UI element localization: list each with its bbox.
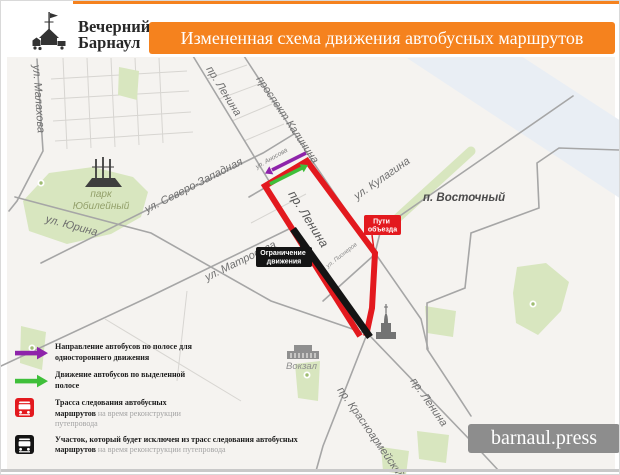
park-label-line1: парк [90, 189, 113, 200]
legend-purple-arrow-icon [15, 342, 55, 365]
bottom-border [1, 469, 619, 472]
legend-item-lane: Движение автобусов по выделенной полосе [15, 370, 325, 393]
legend-oneway-text: Направление автобусов по полосе для одно… [55, 342, 192, 362]
district-label-vostochny: п. Восточный [423, 192, 505, 204]
newspaper-logo-icon [31, 11, 69, 56]
detour-badge-line1: Пути [373, 219, 390, 226]
logo-title: Вечерний Барнаул [78, 19, 150, 51]
top-accent-bar [73, 1, 619, 4]
detour-badge-line2: объезда [368, 226, 397, 234]
legend-item-oneway: Направление автобусов по полосе для одно… [15, 342, 325, 365]
legend-red-bus-icon [15, 398, 55, 423]
legend: Направление автобусов по полосе для одно… [15, 342, 325, 465]
svg-text:Ограничение движения: Ограничение движения [260, 250, 307, 266]
legend-black-bus-icon [15, 435, 55, 460]
infographic-card: Вечерний Барнаул Измененная схема движен… [0, 0, 620, 475]
restriction-badge-line2: движения [267, 259, 301, 266]
legend-excluded-note: на время реконструкции путепровода [96, 445, 226, 454]
legend-green-arrow-icon [15, 370, 55, 393]
legend-item-detour-route: Трасса следования автобусных маршрутов н… [15, 398, 325, 430]
park-label-line2: Юбилейный [73, 200, 130, 212]
logo-title-line2: Барнаул [78, 35, 150, 51]
site-badge: barnaul.press [468, 424, 620, 453]
legend-lane-text: Движение автобусов по выделенной полосе [55, 370, 185, 390]
header: Вечерний Барнаул Измененная схема движен… [1, 1, 619, 57]
banner-title: Измененная схема движения автобусных мар… [149, 22, 615, 54]
legend-item-excluded: Участок, который будет исключен из трасс… [15, 435, 325, 460]
restriction-badge-line1: Ограничение [260, 250, 306, 257]
